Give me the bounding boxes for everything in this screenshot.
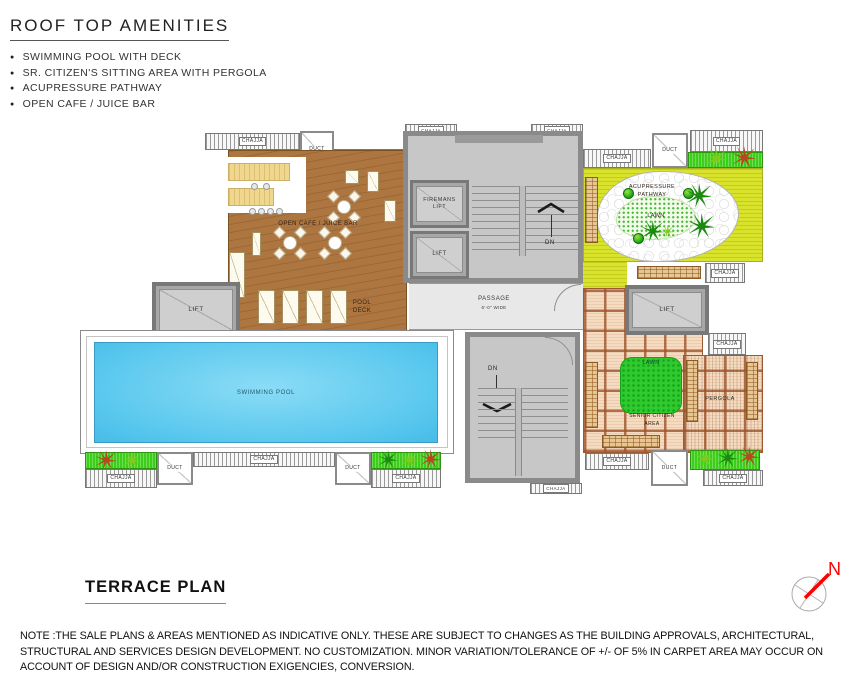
bench [637,266,701,279]
bar-stool [258,208,265,215]
chajja-label: CHAJJA [713,340,740,349]
drawing-title: TERRACE PLAN [85,578,226,604]
cafe-table [320,228,350,258]
chajja-strip: CHAJJA [703,470,763,486]
passage-label: PASSAGE 6'-0" WIDE [455,296,533,311]
chajja-strip: CHAJJA [193,452,335,467]
chajja-strip: CHAJJA [85,469,157,488]
stair-arrow-stem [496,375,497,389]
bench [585,177,598,243]
stair-arrow-stem [551,215,552,237]
acupressure-lawn-tail [583,262,627,288]
lift-label: LIFT [432,251,446,259]
pergola-label: PERGOLA [698,396,742,404]
amenities-list: SWIMMING POOL WITH DECK SR. CITIZEN'S SI… [10,50,267,112]
passage-title: PASSAGE [455,296,533,304]
tree-icon [623,188,634,199]
chajja-label: CHAJJA [713,137,740,146]
duct-box: DUCT [335,452,371,485]
chajja-strip: CHAJJA [708,333,746,355]
page-title: ROOF TOP AMENITIES [10,16,229,41]
lift-label: LIFT [659,306,674,314]
lift-label: LIFT [188,306,203,314]
pool-lounger [306,290,323,324]
duct-label: DUCT [343,465,363,472]
header: ROOF TOP AMENITIES SWIMMING POOL WITH DE… [10,16,267,112]
chajja-label: CHAJJA [239,137,266,146]
bench [746,362,758,420]
amenity-item: ACUPRESSURE PATHWAY [10,81,267,97]
terrace-plan-title: TERRACE PLAN [85,578,226,604]
firemans-lift-label: FIREMANS LIFT [420,197,460,212]
duct-label: DUCT [660,147,680,154]
stair-divider [515,388,522,476]
bar-stool [251,183,258,190]
bar-counter [228,163,290,181]
dn-label: DN [488,366,498,372]
planter-strip [688,152,763,168]
swimming-pool: SWIMMING POOL [94,342,438,443]
stair-landing-edge [455,135,543,143]
north-arrow-icon: N [783,553,849,619]
chajja-strip: CHAJJA [705,263,745,283]
bar-stool [267,208,274,215]
bench [602,435,660,448]
cafe-corner-table [345,170,359,184]
swimming-pool-label: SWIMMING POOL [234,389,298,397]
chajja-strip: CHAJJA [530,483,582,494]
cafe-table [329,192,359,222]
chajja-label: CHAJJA [107,474,134,483]
chajja-strip: CHAJJA [205,133,300,150]
pool-deck-label: POOL DECK [346,300,378,315]
duct-label: DUCT [165,465,185,472]
bar-counter [228,188,274,206]
north-label: N [828,559,841,579]
duct-label: DUCT [660,465,680,472]
chajja-label: CHAJJA [250,455,277,464]
chajja-strip: CHAJJA [690,130,763,152]
pool-lounger [330,290,347,324]
amenity-item: SWIMMING POOL WITH DECK [10,50,267,66]
chajja-label: CHAJJA [392,474,419,483]
planter-strip [85,452,157,469]
lift-right: LIFT [625,285,709,335]
pool-lounger [258,290,275,324]
duct-box: DUCT [157,452,193,485]
chajja-label: CHAJJA [711,269,738,278]
amenity-item: SR. CITIZEN'S SITTING AREA WITH PERGOLA [10,66,267,82]
bench [686,360,698,422]
passage-width-label: 6'-0" WIDE [455,304,533,312]
chajja-strip: CHAJJA [583,149,651,168]
chajja-label: CHAJJA [603,457,630,466]
stair-treads [478,388,568,440]
lawn-label: LAWN [640,213,672,221]
bench [585,362,598,428]
bar-stool [249,208,256,215]
open-cafe-label: OPEN CAFE / JUICE BAR [258,221,378,229]
amenity-item: OPEN CAFE / JUICE BAR [10,97,267,113]
duct-box: DUCT [651,450,688,486]
bar-stool [263,183,270,190]
cafe-side-table [252,232,261,256]
chajja-label: CHAJJA [603,154,630,163]
cafe-table [275,228,305,258]
terrace-plan-page: ROOF TOP AMENITIES SWIMMING POOL WITH DE… [0,0,852,694]
bar-stool [276,208,283,215]
dn-label: DN [545,240,555,246]
lift-core: LIFT [410,231,469,279]
chajja-strip: CHAJJA [585,453,649,470]
firemans-lift: FIREMANS LIFT [410,180,469,228]
chajja-label: CHAJJA [719,474,746,483]
cafe-chair [367,171,379,192]
up-stairs-arrow-icon [536,201,566,215]
chajja-strip: CHAJJA [371,469,441,488]
stair-divider [519,186,526,256]
lawn-label: LAWN [635,360,667,368]
chajja-label: CHAJJA [543,484,568,493]
pool-lounger [282,290,299,324]
tree-icon [633,233,644,244]
cafe-chair [384,200,396,222]
senior-citizen-label: SENIOR CITIZEN AREA [629,413,675,428]
duct-box: DUCT [652,133,688,168]
disclaimer-note: NOTE :THE SALE PLANS & AREAS MENTIONED A… [20,629,838,676]
